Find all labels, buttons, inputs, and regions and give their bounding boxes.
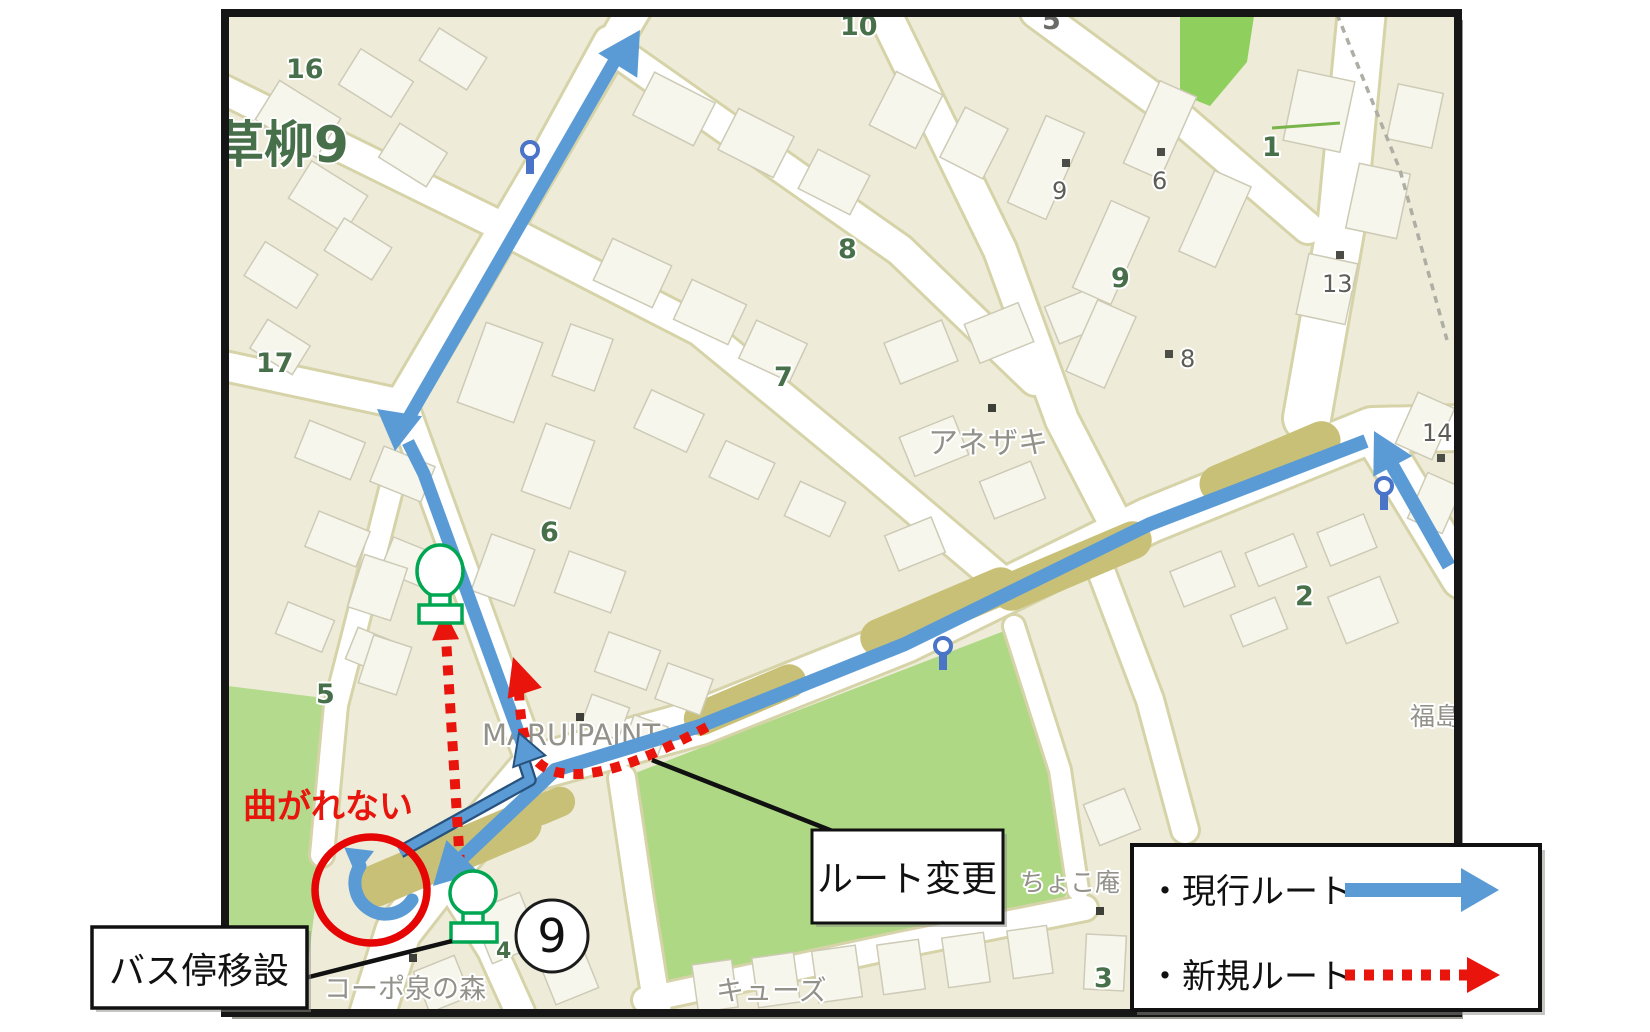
legend-current-route-label: ・現行ルート (1148, 872, 1352, 912)
house-number-dot (1437, 454, 1445, 462)
building (942, 932, 991, 987)
poi-dot (988, 404, 996, 412)
place-label: キューズ (716, 974, 827, 1007)
block-number-label: 8 (838, 234, 857, 265)
block-number-label: 7 (774, 362, 793, 393)
block-number-label: 16 (286, 54, 324, 85)
house-number-dot (1062, 159, 1070, 167)
block-number-label: 6 (540, 517, 559, 548)
house-number-dot (1336, 251, 1344, 259)
route-change-label: ルート変更 (817, 859, 997, 900)
house-number-dot (1165, 350, 1173, 358)
building (1007, 925, 1053, 978)
place-label: アネザキ (928, 426, 1048, 461)
place-label: ちょこ庵 (1020, 868, 1120, 897)
stop-number-text: 9 (537, 909, 566, 963)
map-canvas: 草柳9アネザキMARUIPAINTコーポ泉の森キューズちょこ庵福島1617567… (0, 0, 1650, 1032)
cannot-turn-label: 曲がれない (243, 787, 413, 827)
legend-new-route-label: ・新規ルート (1148, 957, 1352, 997)
legend: ・現行ルート ・新規ルート (1132, 845, 1545, 1015)
block-number-label: 9 (1111, 263, 1130, 294)
block-number-label: 1 (1262, 132, 1281, 163)
poi-dot (1096, 907, 1104, 915)
house-number-label: 13 (1322, 270, 1353, 298)
bus-stop-relocation-box: バス停移設 (92, 927, 311, 1012)
place-label: コーポ泉の森 (324, 974, 486, 1005)
block-number-label: 3 (1094, 963, 1113, 994)
poi-dot (409, 954, 417, 962)
poi-dot (576, 713, 584, 721)
building (877, 939, 926, 994)
house-number-label: 14 (1422, 419, 1453, 447)
bus-stop-icon-old (417, 545, 463, 623)
route-change-box: ルート変更 (812, 830, 1007, 927)
block-number-label: 2 (1295, 581, 1314, 612)
bus-route-map-page: 草柳9アネザキMARUIPAINTコーポ泉の森キューズちょこ庵福島1617567… (0, 0, 1650, 1032)
place-label: 草柳9 (214, 116, 349, 174)
house-number-label: 6 (1152, 167, 1167, 195)
house-number-label: 8 (1180, 345, 1195, 373)
bus-stop-icon-new (450, 871, 497, 942)
block-number-label: 17 (256, 348, 294, 379)
stop-number-badge: 9 (516, 900, 588, 972)
house-number-dot (1157, 148, 1165, 156)
place-label: 福島 (1410, 702, 1460, 731)
block-number-label: 5 (316, 679, 335, 710)
house-number-label: 9 (1052, 177, 1067, 205)
bus-stop-relocation-label: バス停移設 (109, 951, 289, 992)
